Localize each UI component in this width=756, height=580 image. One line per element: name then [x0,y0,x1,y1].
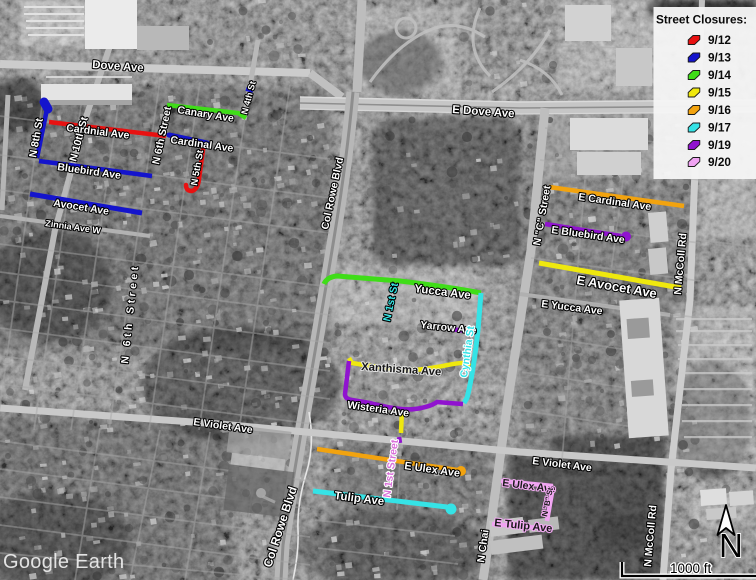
svg-text:9/20: 9/20 [708,155,731,169]
svg-text:9/19: 9/19 [708,138,731,152]
svg-text:9/16: 9/16 [708,103,731,117]
svg-text:9/15: 9/15 [708,86,731,100]
svg-text:9/14: 9/14 [708,68,731,82]
svg-text:Google Earth: Google Earth [3,551,124,573]
svg-text:9/17: 9/17 [708,121,731,135]
svg-text:9/13: 9/13 [708,51,731,65]
svg-text:Street Closures:: Street Closures: [656,13,747,27]
svg-text:9/12: 9/12 [708,33,731,47]
svg-text:1000 ft: 1000 ft [670,561,712,576]
svg-text:N: N [719,527,743,564]
